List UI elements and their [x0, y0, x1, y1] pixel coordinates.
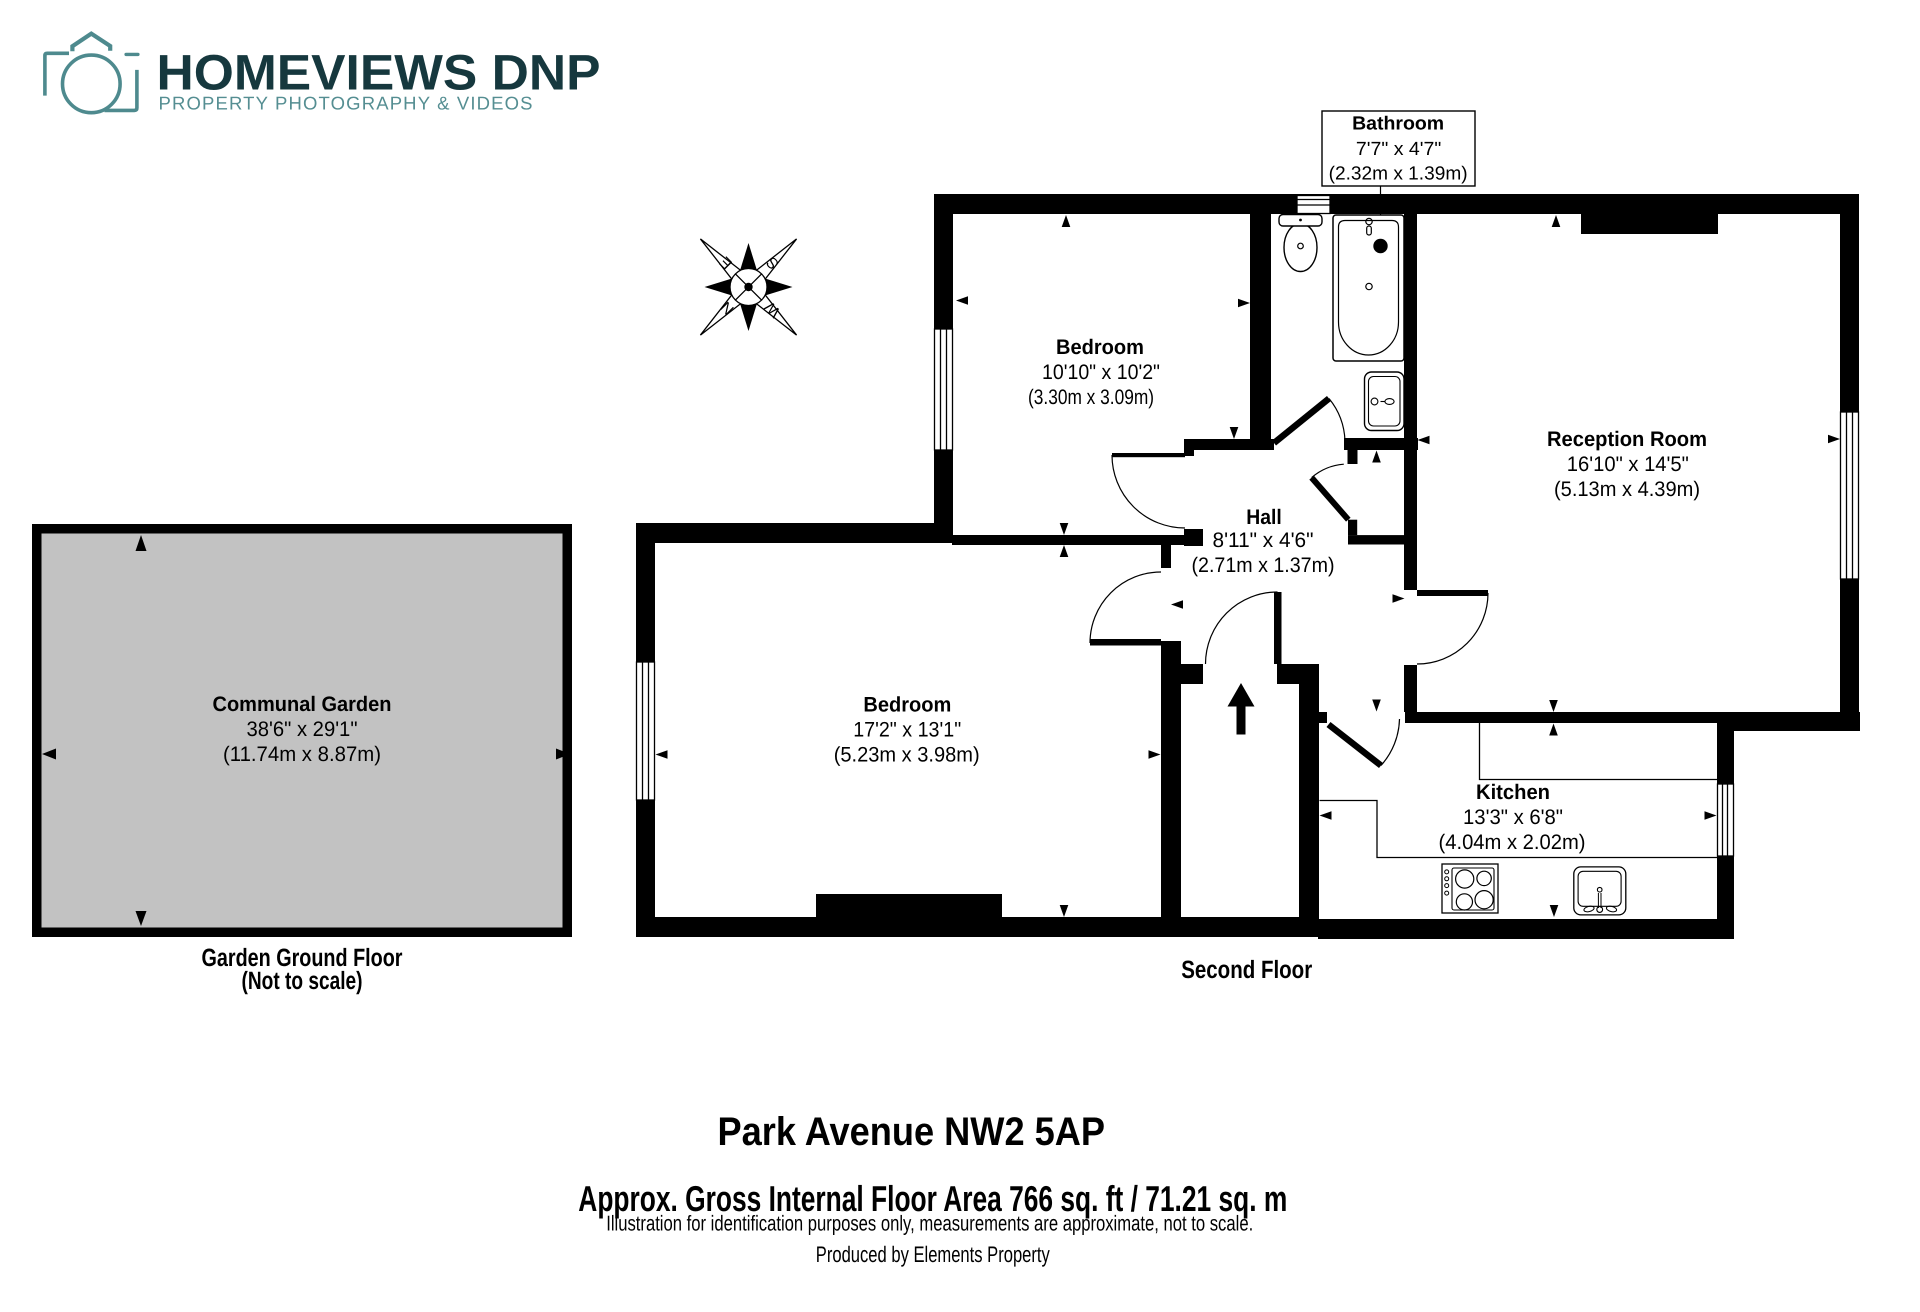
svg-text:(Not to scale): (Not to scale) [242, 967, 363, 995]
svg-text:Bathroom: Bathroom [1352, 114, 1444, 135]
svg-text:Bedroom: Bedroom [1056, 336, 1144, 359]
svg-text:(2.32m x 1.39m): (2.32m x 1.39m) [1329, 164, 1468, 185]
svg-text:7'7" x 4'7": 7'7" x 4'7" [1356, 139, 1441, 160]
svg-text:Reception Room: Reception Room [1547, 428, 1707, 451]
svg-text:Produced by Elements Property: Produced by Elements Property [816, 1242, 1051, 1267]
svg-text:10'10" x 10'2": 10'10" x 10'2" [1042, 361, 1160, 384]
svg-text:38'6" x 29'1": 38'6" x 29'1" [247, 718, 358, 741]
svg-text:(5.13m x 4.39m): (5.13m x 4.39m) [1554, 478, 1700, 501]
svg-text:Hall: Hall [1246, 506, 1282, 529]
svg-text:(11.74m x 8.87m): (11.74m x 8.87m) [223, 743, 381, 766]
svg-text:(3.30m x 3.09m): (3.30m x 3.09m) [1028, 386, 1154, 409]
svg-text:17'2" x 13'1": 17'2" x 13'1" [853, 719, 961, 742]
svg-text:Illustration for identificatio: Illustration for identification purposes… [606, 1212, 1253, 1236]
svg-text:13'3" x 6'8": 13'3" x 6'8" [1463, 806, 1563, 829]
svg-text:PROPERTY PHOTOGRAPHY & VIDEOS: PROPERTY PHOTOGRAPHY & VIDEOS [159, 93, 533, 114]
svg-text:8'11" x 4'6": 8'11" x 4'6" [1213, 529, 1314, 552]
svg-text:Bedroom: Bedroom [863, 694, 951, 717]
svg-text:Park Avenue NW2 5AP: Park Avenue NW2 5AP [718, 1110, 1106, 1154]
svg-text:Kitchen: Kitchen [1476, 781, 1550, 804]
svg-text:Second Floor: Second Floor [1181, 956, 1312, 984]
svg-text:Communal Garden: Communal Garden [213, 693, 392, 716]
svg-text:(5.23m x 3.98m): (5.23m x 3.98m) [834, 744, 980, 767]
svg-text:16'10" x 14'5": 16'10" x 14'5" [1567, 453, 1689, 476]
svg-text:(4.04m x 2.02m): (4.04m x 2.02m) [1439, 831, 1586, 854]
svg-text:(2.71m x 1.37m): (2.71m x 1.37m) [1192, 554, 1335, 577]
